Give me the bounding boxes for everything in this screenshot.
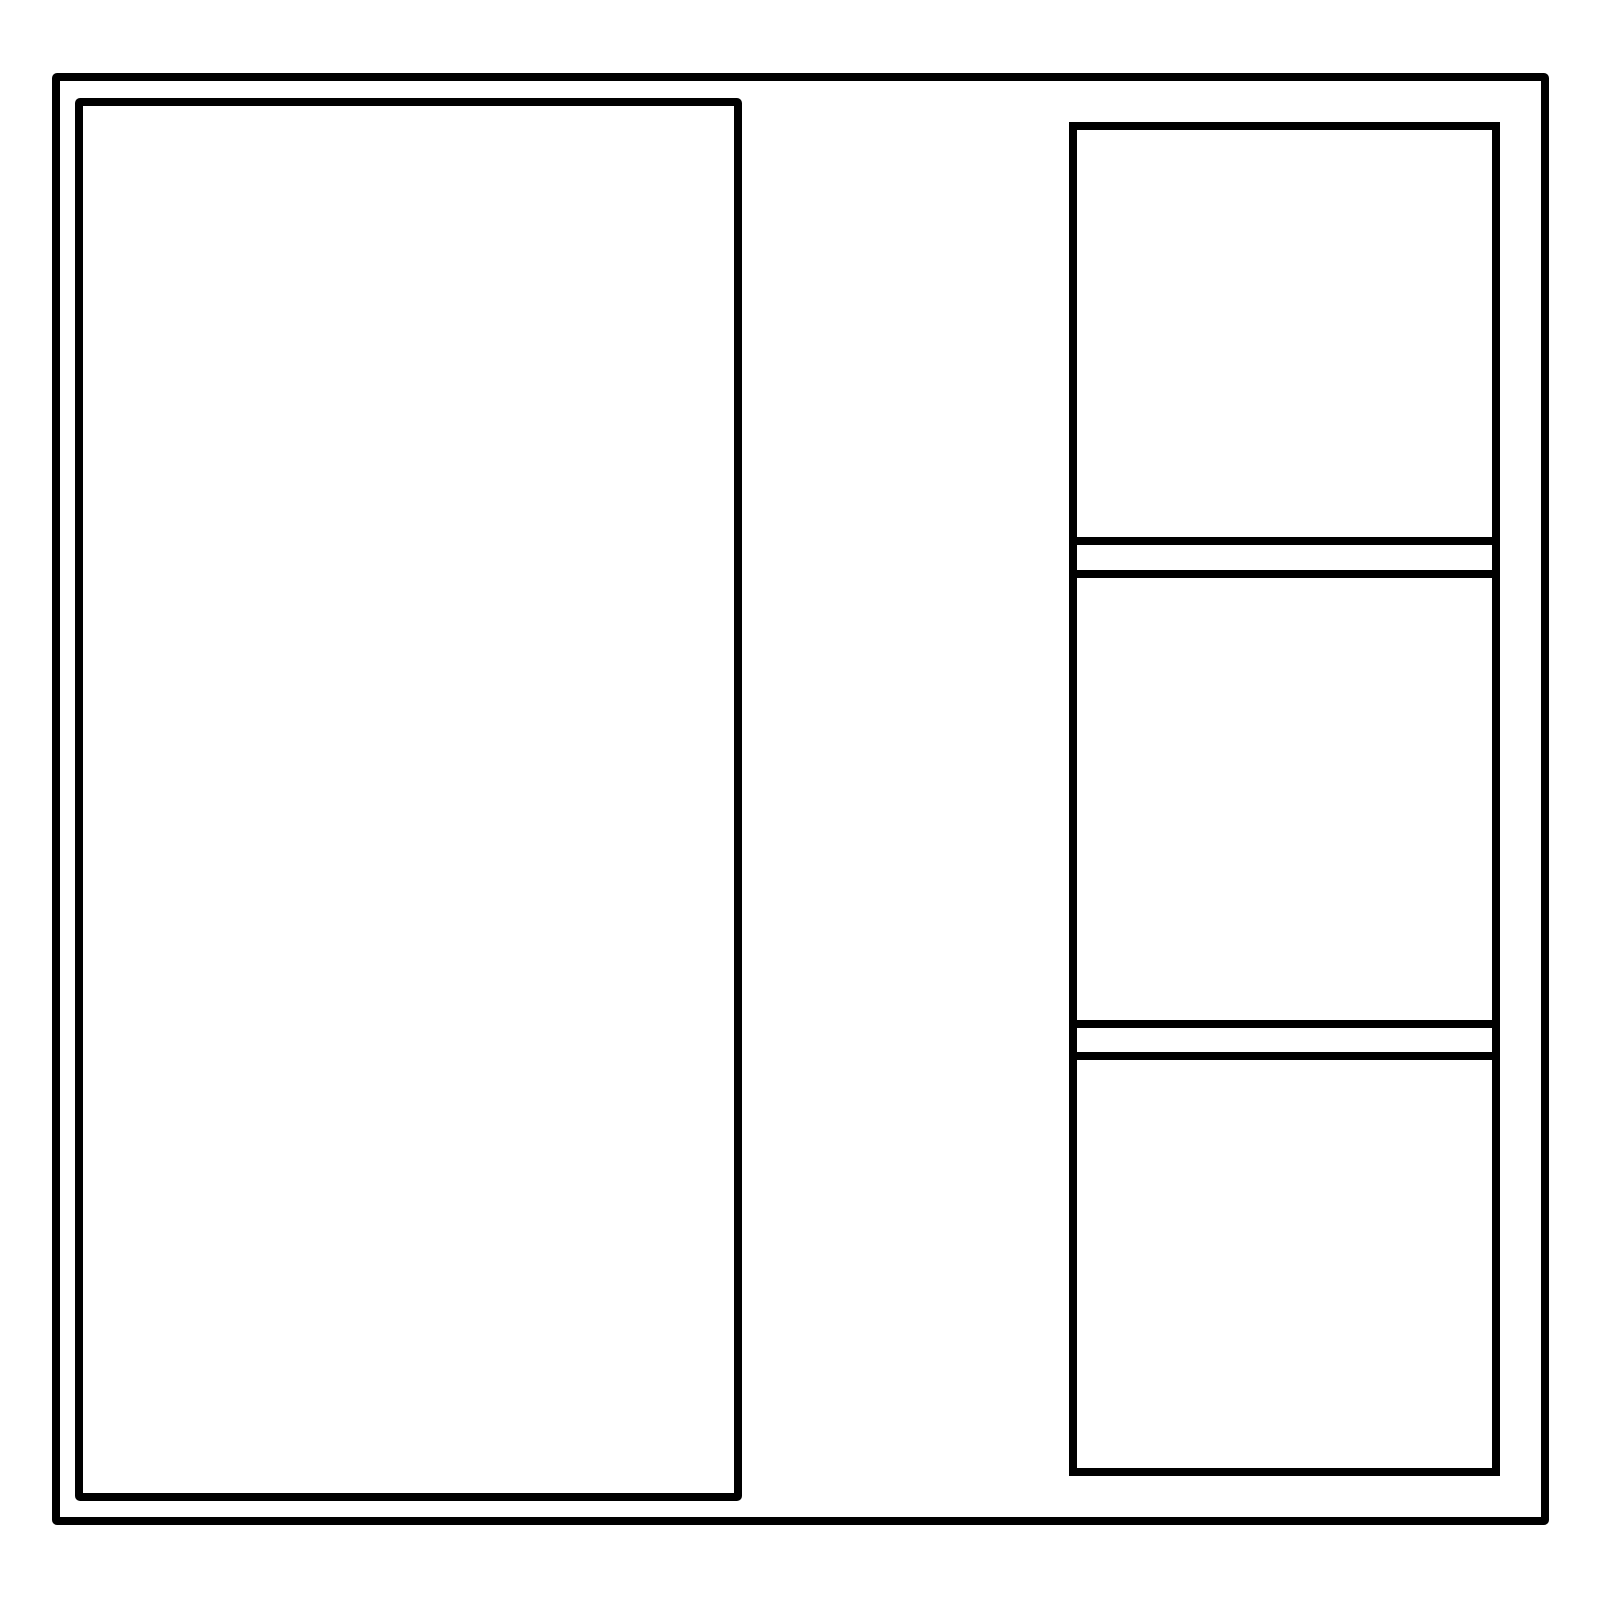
- right-gap-2: [1077, 1028, 1492, 1052]
- left-panel-rectangle: [75, 98, 742, 1501]
- right-gap-1: [1077, 545, 1492, 570]
- drawing-canvas: [0, 0, 1600, 1600]
- right-middle-box: [1077, 570, 1492, 1028]
- right-bottom-box: [1077, 1052, 1492, 1476]
- right-top-box: [1077, 122, 1492, 545]
- right-column: [1069, 122, 1500, 1476]
